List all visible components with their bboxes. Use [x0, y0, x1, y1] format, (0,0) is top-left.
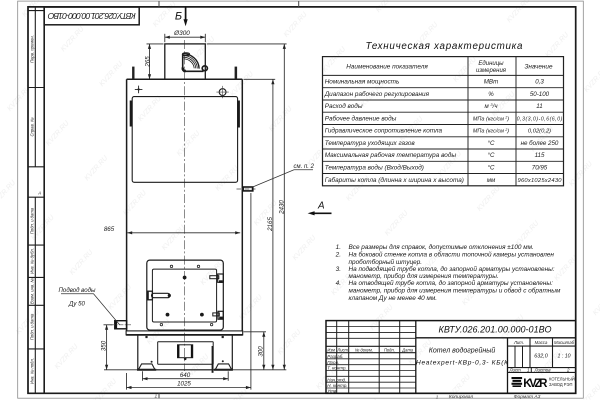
svg-text:Ду 50: Ду 50 — [68, 301, 85, 308]
svg-text:°С: °С — [488, 165, 495, 172]
svg-text:Наименование показателя: Наименование показателя — [346, 63, 428, 70]
svg-text:А: А — [317, 201, 325, 212]
svg-text:1025: 1025 — [177, 381, 191, 388]
svg-text:На боковой стенке котла в обла: На боковой стенке котла в области топочн… — [349, 250, 555, 258]
svg-text:А: А — [37, 191, 41, 196]
svg-text:КВТУ.026.201.00.000-01ВО: КВТУ.026.201.00.000-01ВО — [47, 11, 135, 21]
svg-text:Максимальная рабочая температу: Максимальная рабочая температура воды — [325, 151, 457, 159]
svg-text:°С: °С — [488, 152, 495, 159]
svg-text:Габариты котла (длинна х ширин: Габариты котла (длинна х ширина х высота… — [325, 176, 464, 184]
svg-text:Техническая характеристика: Техническая характеристика — [366, 41, 524, 52]
svg-text:0,3: 0,3 — [535, 79, 544, 86]
svg-text:300: 300 — [258, 346, 265, 357]
svg-text:0,02(0,2): 0,02(0,2) — [528, 129, 551, 135]
svg-text:Взам. инв. №: Взам. инв. № — [29, 278, 34, 304]
svg-text:115: 115 — [535, 152, 545, 159]
svg-text:На подводящей трубе котла, до: На подводящей трубе котла, до запорной а… — [349, 265, 555, 273]
svg-text:Значение: Значение — [524, 63, 552, 70]
svg-text:4.: 4. — [336, 280, 341, 287]
svg-text:клапаном Ду не менее 40 мм.: клапаном Ду не менее 40 мм. — [349, 295, 438, 302]
svg-text:Справ. №: Справ. № — [29, 117, 34, 136]
svg-text:Лит.: Лит. — [513, 340, 524, 345]
svg-text:Разраб.: Разраб. — [327, 354, 343, 359]
svg-text:Подвод воды: Подвод воды — [59, 287, 96, 294]
svg-text:Масса: Масса — [535, 340, 548, 345]
svg-text:°С: °С — [488, 140, 495, 147]
svg-text:50-100: 50-100 — [530, 91, 550, 98]
svg-text:измерения: измерения — [476, 68, 507, 74]
svg-text:70/95: 70/95 — [532, 165, 548, 172]
svg-text:Б: Б — [175, 10, 182, 22]
svg-text:Диапазон рабочего регулировани: Диапазон рабочего регулирования — [324, 90, 430, 98]
svg-text:Все размеры для справок, допус: Все размеры для справок, допустимые откл… — [349, 243, 534, 251]
svg-text:2430: 2430 — [278, 200, 285, 215]
svg-text:1 : 10: 1 : 10 — [558, 353, 571, 359]
svg-text:265: 265 — [144, 56, 151, 68]
svg-text:не более 250: не более 250 — [521, 140, 559, 147]
svg-text:Единицы: Единицы — [478, 61, 504, 67]
svg-text:КВТУ.026.201.00.000-01ВО: КВТУ.026.201.00.000-01ВО — [439, 325, 552, 335]
svg-text:МПа (кгс/см 2): МПа (кгс/см 2) — [473, 128, 509, 135]
svg-text:см. п. 2: см. п. 2 — [294, 164, 315, 170]
svg-text:Подп.: Подп. — [384, 347, 395, 352]
svg-text:Расход воды: Расход воды — [325, 102, 363, 110]
svg-text:Лист: Лист — [336, 347, 348, 352]
svg-text:Гидравлическое сопротивление к: Гидравлическое сопротивление котла — [325, 127, 443, 135]
svg-text:Н. контр.: Н. контр. — [327, 383, 347, 388]
svg-text:Heatexpert-КВр-0,3- КБ(К: Heatexpert-КВр-0,3- КБ(К — [416, 359, 509, 366]
svg-text:№ докум.: № докум. — [355, 347, 373, 352]
svg-text:1: 1 — [155, 394, 158, 400]
svg-text:мм: мм — [487, 177, 496, 184]
svg-text:632,0: 632,0 — [534, 353, 548, 359]
svg-text:Перв. примен.: Перв. примен. — [29, 35, 34, 63]
svg-text:Копировал: Копировал — [449, 394, 474, 400]
svg-text:Подп. и дата: Подп. и дата — [29, 207, 34, 234]
svg-text:KVZR: KVZR — [523, 378, 548, 390]
svg-text:11: 11 — [536, 103, 542, 110]
svg-text:КОТЕЛЬНЫЙ: КОТЕЛЬНЫЙ — [549, 376, 575, 381]
svg-text:Инв. № дубл.: Инв. № дубл. — [29, 248, 34, 274]
svg-text:Подп. и дата: Подп. и дата — [29, 313, 34, 340]
svg-text:Лист: Лист — [509, 368, 522, 373]
svg-text:Ø300: Ø300 — [173, 30, 190, 37]
svg-text:Дата: Дата — [401, 347, 414, 352]
svg-text:960х1025х2430: 960х1025х2430 — [518, 178, 563, 184]
svg-text:2165: 2165 — [267, 217, 274, 232]
svg-text:%: % — [488, 91, 494, 98]
svg-text:Номинальная мощность: Номинальная мощность — [325, 79, 400, 86]
svg-text:Инв. № подл.: Инв. № подл. — [29, 358, 34, 384]
svg-text:проботборный штуцер.: проботборный штуцер. — [349, 258, 423, 266]
svg-text:Формат А3: Формат А3 — [514, 394, 541, 400]
svg-text:Котел водогрейный: Котел водогрейный — [429, 346, 496, 354]
svg-text:Т. контр.: Т. контр. — [327, 366, 346, 371]
svg-text:Нач.отд.: Нач.отд. — [327, 377, 346, 382]
svg-text:манометр, прибор для измерения: манометр, прибор для измерения температу… — [349, 287, 561, 295]
svg-text:Пров.: Пров. — [327, 360, 339, 365]
svg-text:Утв.: Утв. — [327, 388, 337, 393]
svg-text:Листов: Листов — [534, 367, 552, 372]
svg-text:865: 865 — [104, 226, 115, 233]
svg-text:Температура воды (Вход/Выход): Температура воды (Вход/Выход) — [325, 164, 424, 172]
svg-text:0,3(3,0)-0,6(6,0): 0,3(3,0)-0,6(6,0) — [517, 116, 563, 122]
svg-text:350: 350 — [101, 340, 108, 351]
svg-text:МПа (кгс/см 2): МПа (кгс/см 2) — [473, 116, 509, 123]
svg-text:манометр, прибор для измерения: манометр, прибор для измерения температу… — [349, 272, 499, 280]
svg-text:Масштаб: Масштаб — [554, 340, 575, 345]
svg-text:На отводящей трубе котла, до з: На отводящей трубе котла, до запорной ар… — [349, 279, 554, 287]
svg-text:640: 640 — [180, 372, 191, 379]
svg-text:МВт: МВт — [484, 79, 498, 86]
svg-text:Изм: Изм — [327, 348, 335, 353]
svg-text:ЗАВОД РЭП: ЗАВОД РЭП — [549, 382, 572, 387]
svg-text:Рабочее давление воды: Рабочее давление воды — [325, 114, 397, 122]
svg-text:2: 2 — [566, 367, 570, 372]
svg-text:1.: 1. — [336, 244, 341, 251]
svg-text:3.: 3. — [336, 266, 341, 273]
svg-text:2.: 2. — [335, 251, 341, 258]
svg-text:Температура уходящих газов: Температура уходящих газов — [325, 139, 416, 147]
